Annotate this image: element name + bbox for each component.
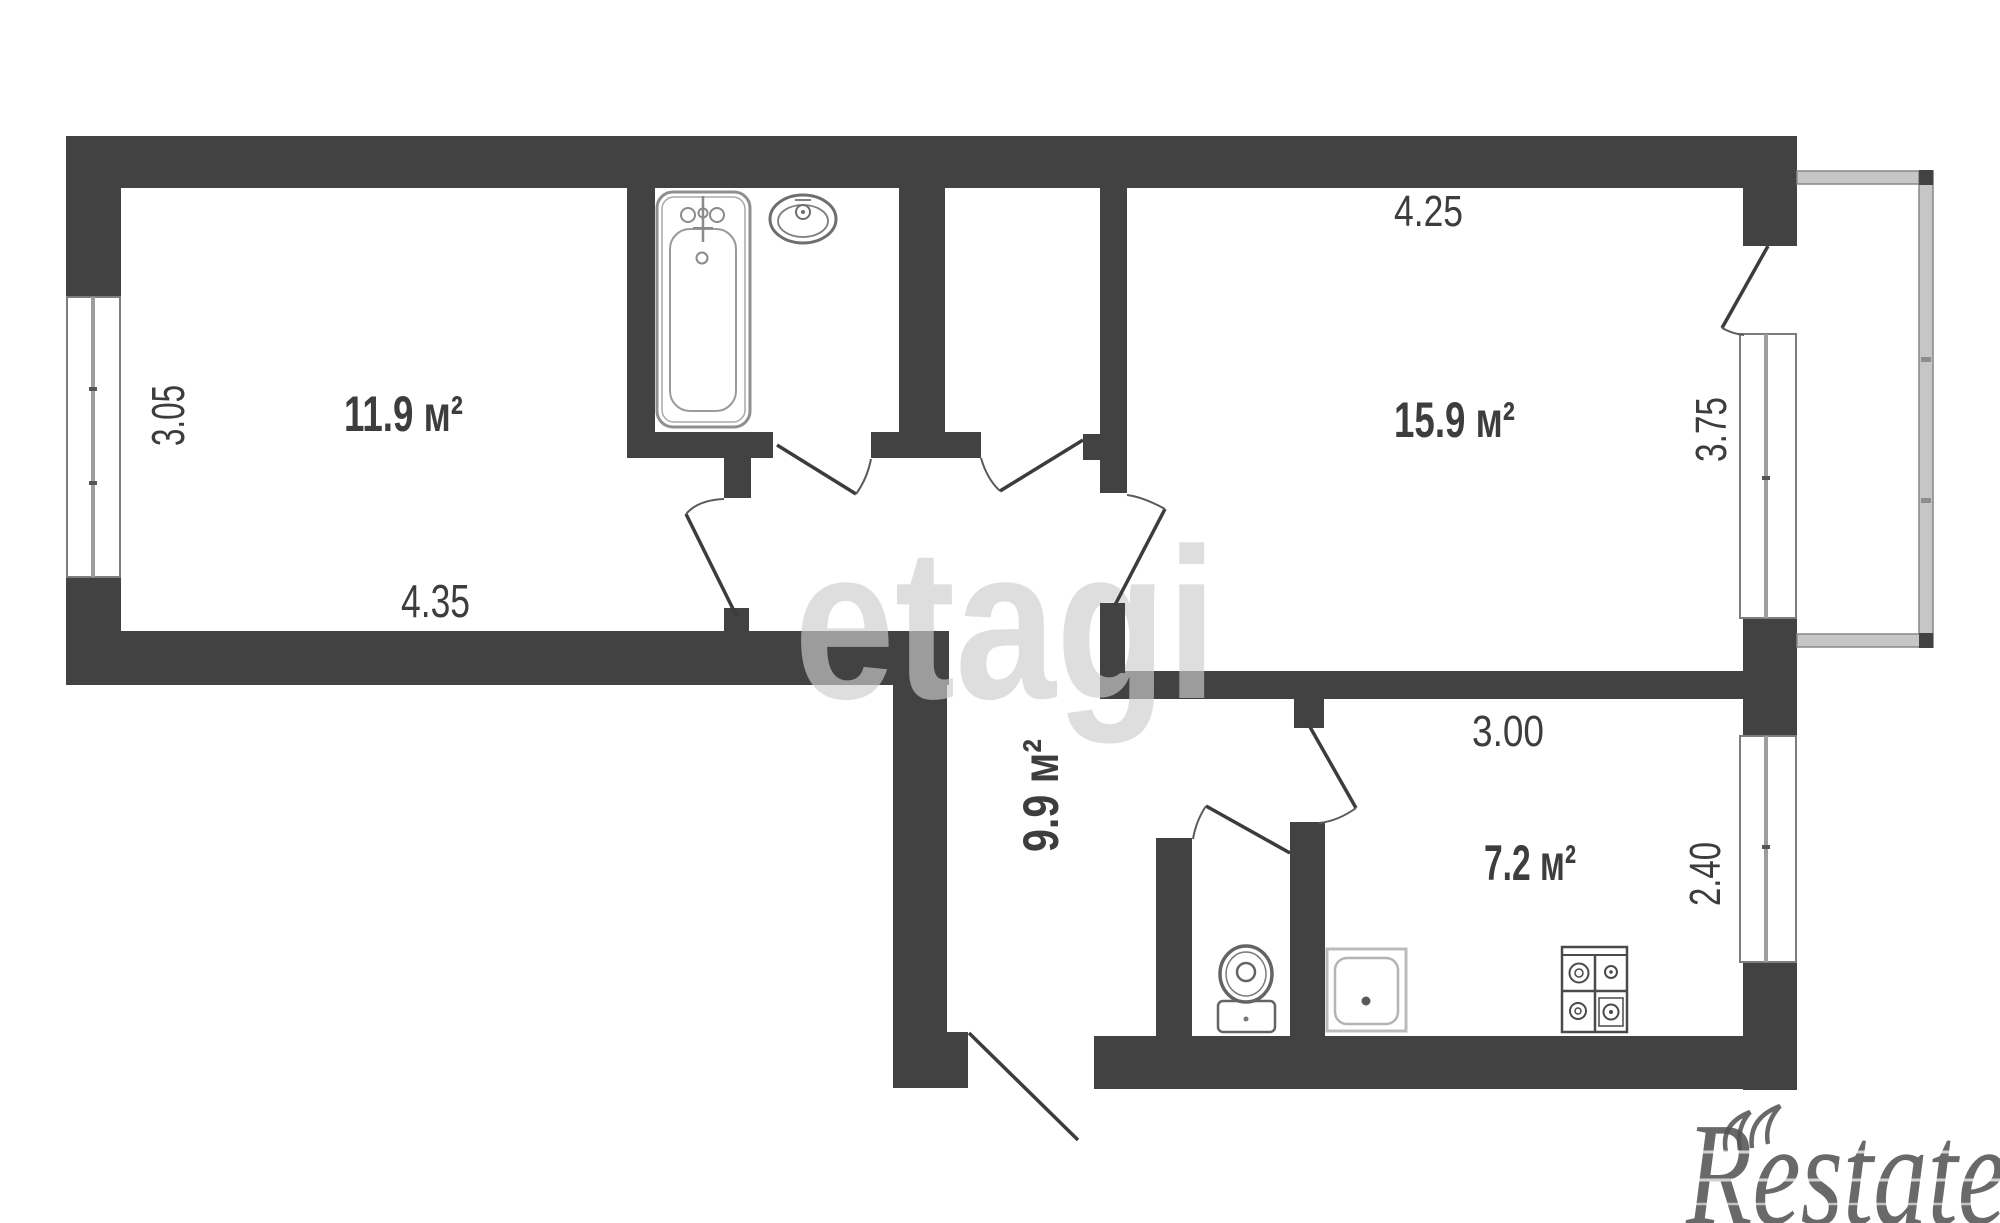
svg-text:7.2 м²: 7.2 м² [1484, 835, 1576, 891]
svg-text:3.05: 3.05 [142, 385, 194, 446]
svg-text:4.35: 4.35 [401, 575, 470, 627]
svg-text:15.9 м²: 15.9 м² [1394, 392, 1515, 448]
svg-text:etagi: etagi [794, 503, 1217, 744]
svg-text:4.25: 4.25 [1394, 187, 1463, 236]
svg-text:11.9 м²: 11.9 м² [344, 386, 463, 442]
svg-text:3.75: 3.75 [1687, 397, 1736, 462]
svg-text:9.9 м²: 9.9 м² [1013, 739, 1069, 852]
svg-text:3.00: 3.00 [1472, 707, 1544, 756]
svg-text:2.40: 2.40 [1681, 842, 1730, 906]
